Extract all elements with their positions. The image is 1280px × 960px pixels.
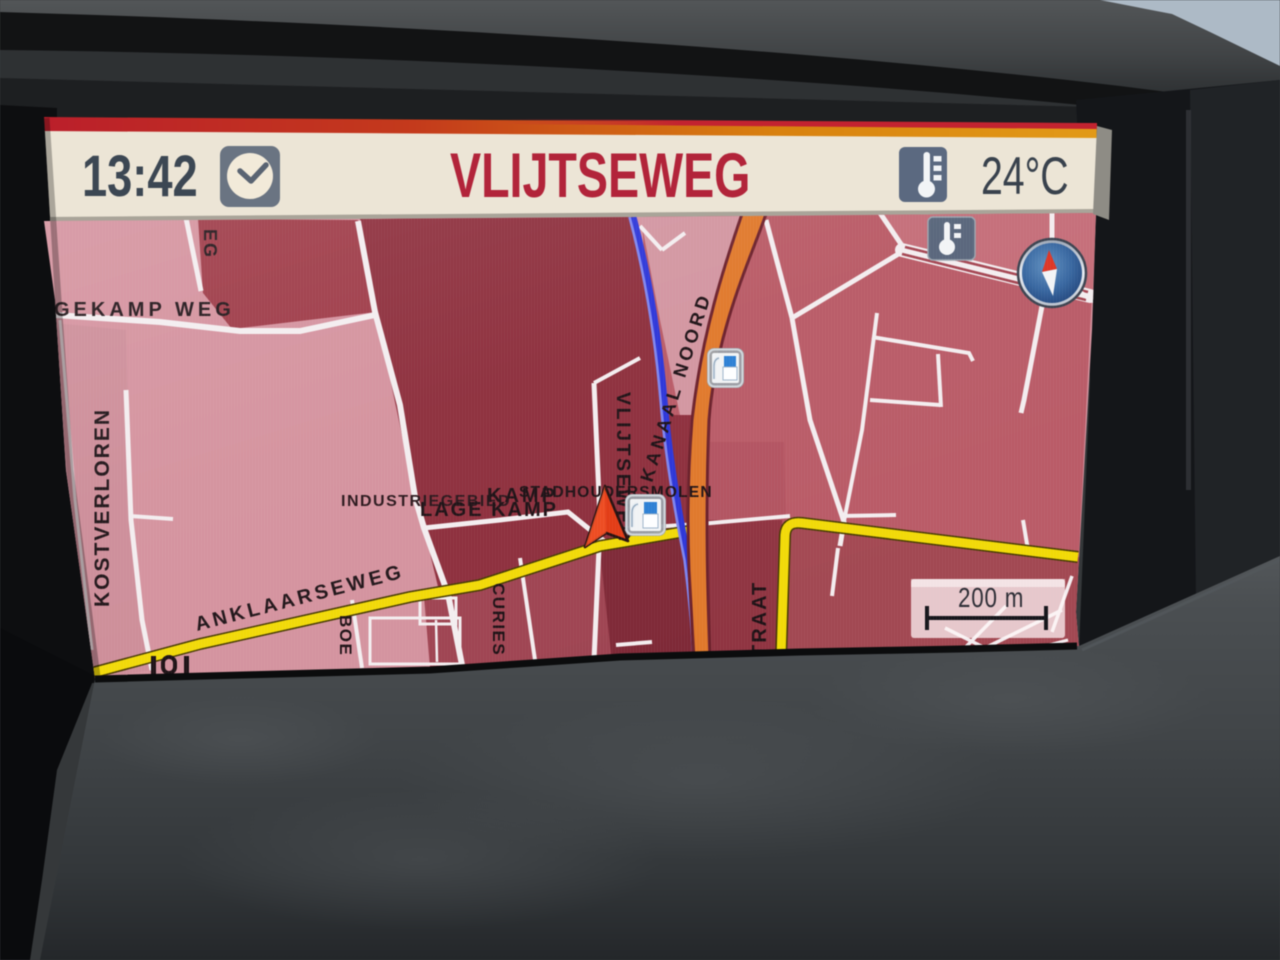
svg-text:VLIJTSEWEG: VLIJTSEWEG [450,140,750,210]
svg-text:24°C: 24°C [981,146,1069,205]
svg-text:13:42: 13:42 [82,145,198,210]
